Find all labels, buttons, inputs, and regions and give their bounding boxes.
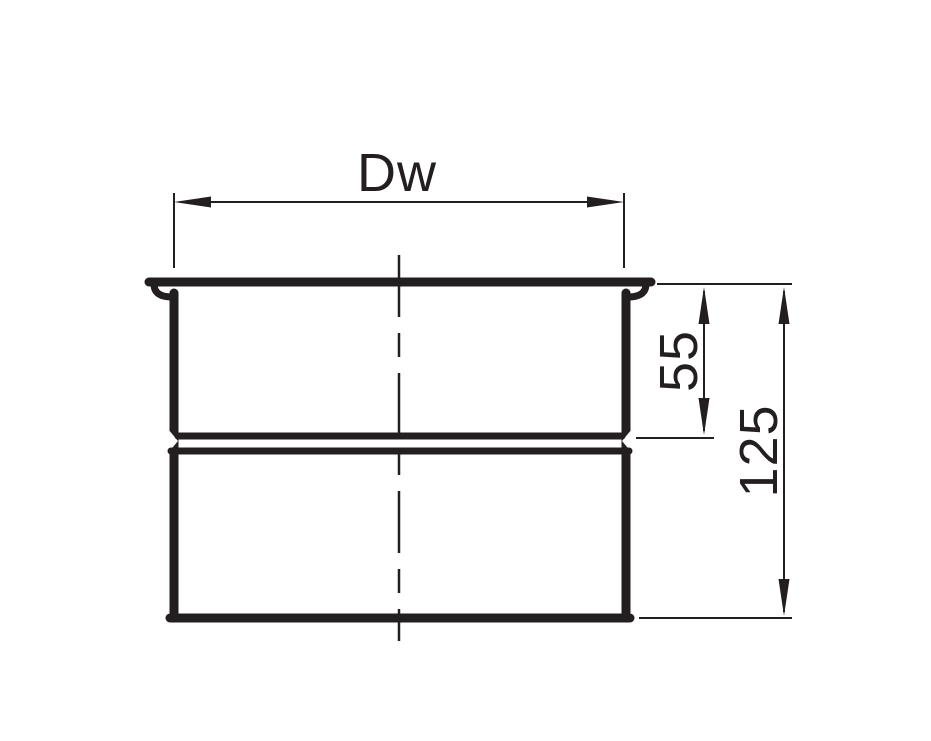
dim125-arrow-up-icon [779,287,790,324]
part-outline [149,282,651,618]
dim125-arrow-down-icon [779,579,790,616]
dw-arrow-left-icon [174,197,211,208]
technical-drawing-canvas: Dw 55 125 [0,0,931,741]
dw-label: Dw [357,143,437,203]
dw-arrow-right-icon [587,197,624,208]
dim125-label: 125 [729,404,789,497]
dim55-label: 55 [649,330,709,392]
dim55-arrow-down-icon [699,398,710,435]
pipe-socket-drawing: Dw 55 125 [0,0,931,741]
dimension-dw: Dw [174,143,624,268]
dim55-arrow-up-icon [699,287,710,324]
